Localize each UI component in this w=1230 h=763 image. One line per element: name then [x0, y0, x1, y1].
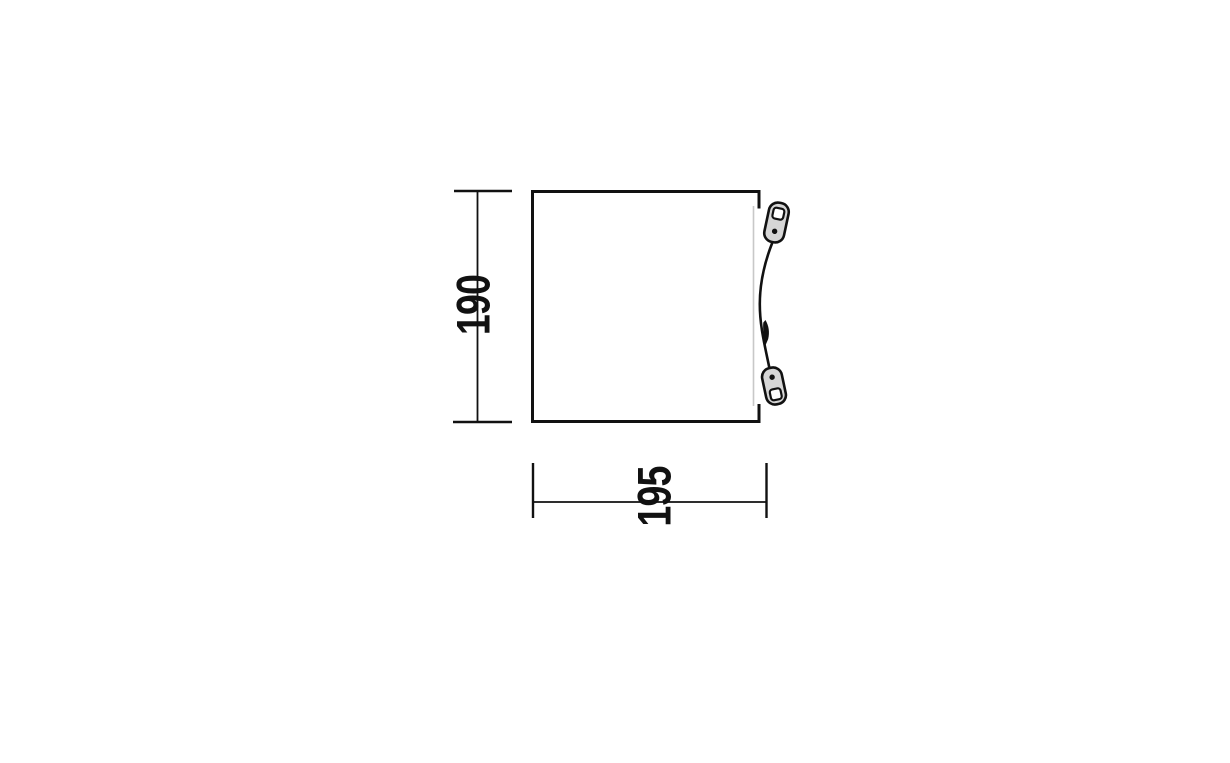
width-dimension-label: 195: [628, 466, 681, 527]
tensioner-strap-hole: [769, 388, 782, 401]
tent-dimension-diagram: 190 195: [0, 0, 1230, 763]
width-dimension: 195: [533, 463, 767, 527]
height-dimension-label: 190: [447, 275, 500, 335]
guyline-tensioner-bottom-icon: [760, 366, 787, 406]
guyline-tensioner-top-icon: [763, 201, 791, 244]
tensioner-strap-hole: [772, 207, 785, 220]
dimension-diagram-page: 190 195: [0, 0, 1230, 763]
guyline-rope: [760, 244, 772, 369]
height-dimension: 190: [447, 191, 512, 422]
tent-footprint-outline: [533, 192, 760, 422]
